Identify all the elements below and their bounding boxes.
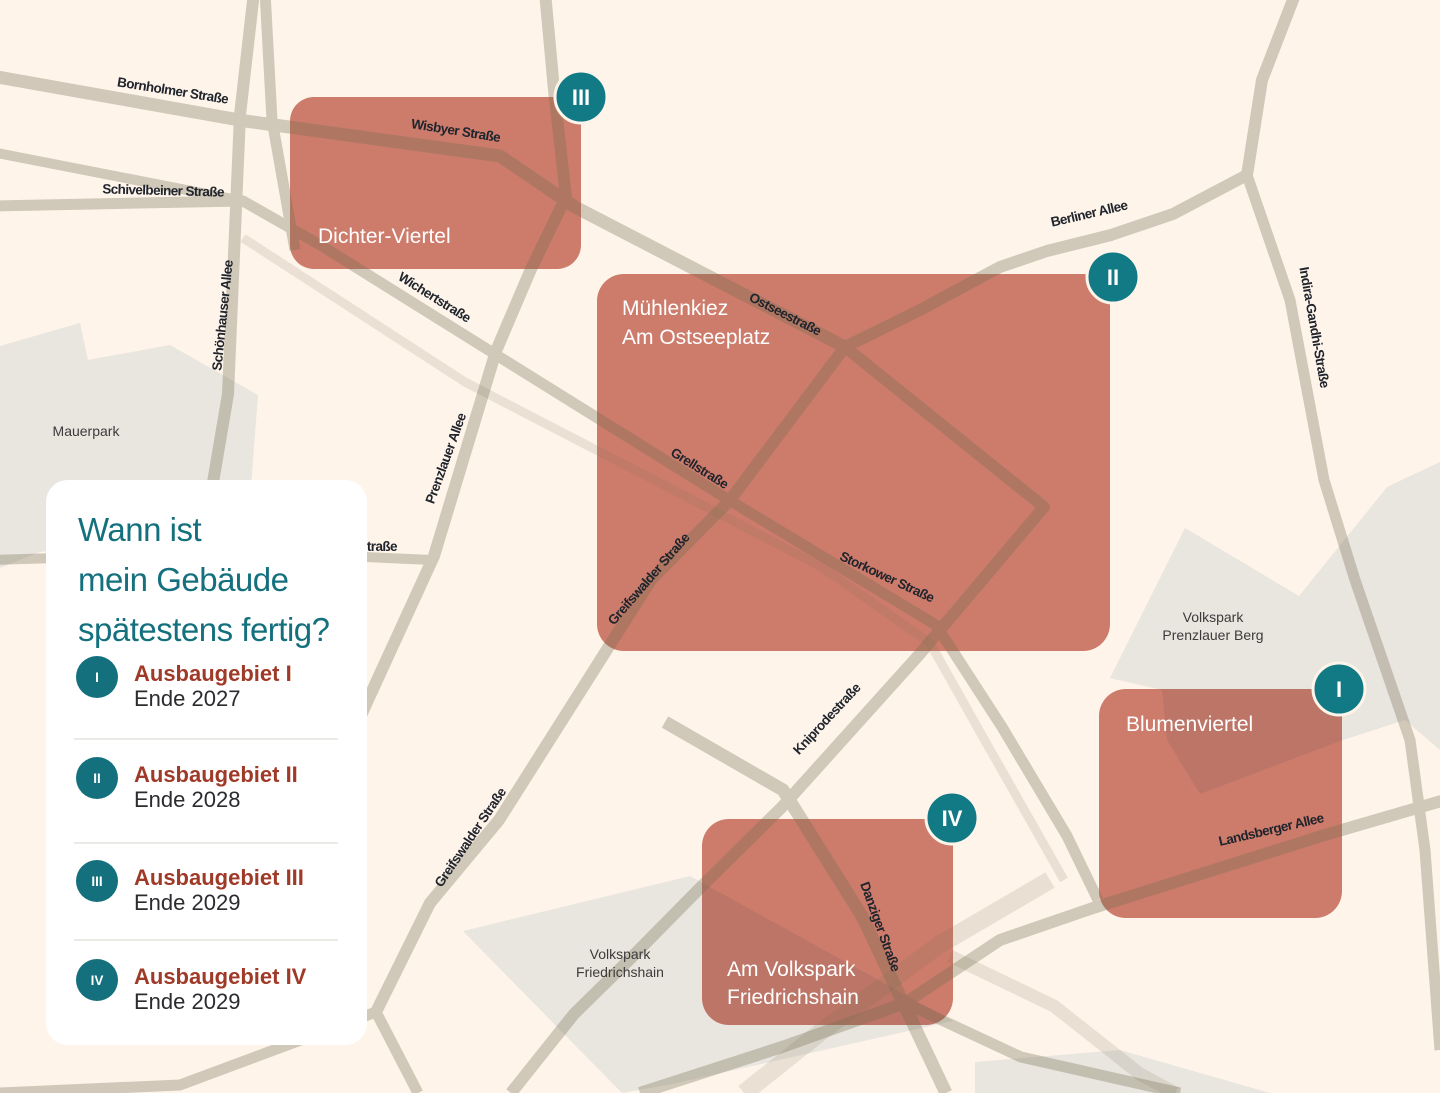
svg-text:Ausbaugebiet I: Ausbaugebiet I (134, 661, 292, 686)
svg-text:Ende 2027: Ende 2027 (134, 686, 240, 711)
svg-text:Ende 2029: Ende 2029 (134, 890, 240, 915)
svg-text:III: III (572, 85, 590, 110)
svg-text:Ausbaugebiet IV: Ausbaugebiet IV (134, 964, 307, 989)
svg-text:Friedrichshain: Friedrichshain (727, 986, 859, 1009)
svg-text:Mauerpark: Mauerpark (53, 423, 121, 439)
svg-text:Friedrichshain: Friedrichshain (576, 964, 664, 980)
svg-text:Prenzlauer Berg: Prenzlauer Berg (1162, 627, 1263, 643)
svg-text:II: II (93, 771, 101, 786)
svg-text:Wann ist: Wann ist (78, 511, 201, 548)
svg-text:II: II (1107, 265, 1119, 290)
svg-text:IV: IV (91, 973, 104, 988)
svg-text:I: I (1336, 677, 1342, 702)
svg-text:Mühlenkiez: Mühlenkiez (622, 297, 728, 320)
svg-text:Ausbaugebiet III: Ausbaugebiet III (134, 865, 304, 890)
svg-text:Ende 2028: Ende 2028 (134, 787, 240, 812)
svg-text:mein Gebäude: mein Gebäude (78, 561, 288, 598)
svg-text:Volkspark: Volkspark (590, 946, 652, 962)
svg-text:III: III (91, 874, 102, 889)
svg-text:I: I (95, 670, 99, 685)
svg-text:Ausbaugebiet II: Ausbaugebiet II (134, 762, 298, 787)
svg-text:IV: IV (942, 806, 963, 831)
svg-text:Blumenviertel: Blumenviertel (1126, 713, 1253, 736)
svg-text:Dichter-Viertel: Dichter-Viertel (318, 225, 451, 248)
svg-text:Schivelbeiner Straße: Schivelbeiner Straße (102, 181, 225, 199)
svg-text:Am Ostseeplatz: Am Ostseeplatz (622, 326, 770, 349)
svg-text:Am Volkspark: Am Volkspark (727, 958, 856, 981)
svg-text:Volkspark: Volkspark (1183, 609, 1245, 625)
svg-text:spätestens fertig?: spätestens fertig? (78, 611, 330, 648)
svg-text:Ende 2029: Ende 2029 (134, 989, 240, 1014)
